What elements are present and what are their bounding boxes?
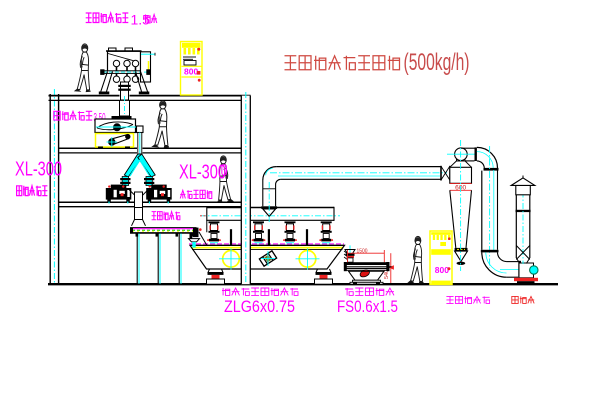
svg-text:(500kg/h): (500kg/h): [404, 49, 470, 76]
svg-text:XL-300: XL-300: [179, 162, 226, 184]
svg-text:1500: 1500: [357, 248, 368, 254]
svg-text:ZLG6x0.75: ZLG6x0.75: [224, 297, 295, 316]
svg-text:FS0.6x1.5: FS0.6x1.5: [337, 297, 398, 316]
svg-text:XL-300: XL-300: [15, 159, 62, 181]
svg-text:800: 800: [435, 265, 449, 275]
svg-text:800: 800: [184, 67, 198, 77]
